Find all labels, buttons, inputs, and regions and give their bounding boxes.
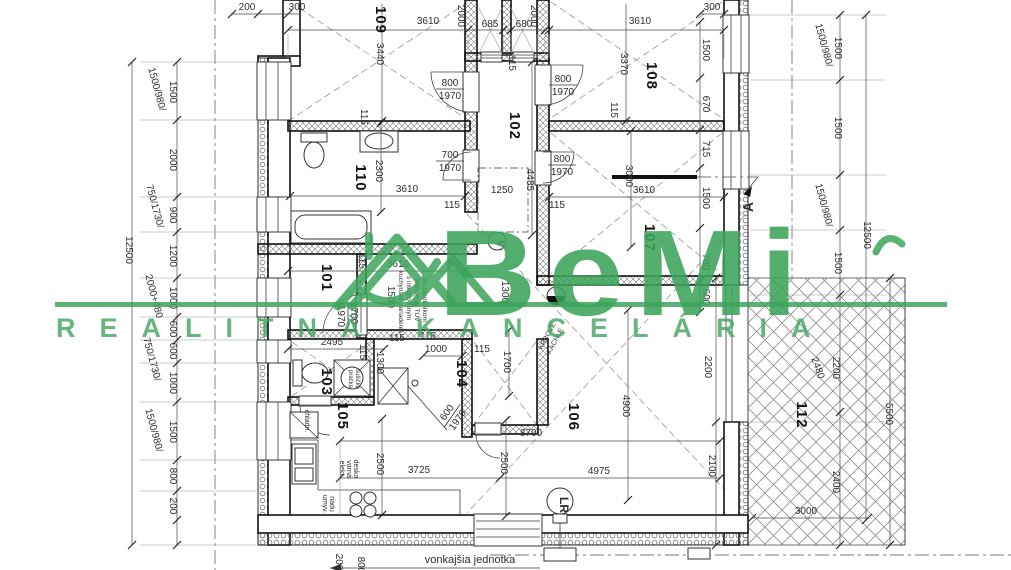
- door-width: 700: [442, 150, 459, 161]
- window-right-1: [723, 15, 749, 73]
- annotation: elekt.: [338, 461, 345, 478]
- window-left-1: [257, 62, 291, 120]
- watermark-subtitle: REALITNÁ KANCELÁRIA: [56, 313, 834, 344]
- dimension-label: 115: [506, 55, 517, 71]
- dimension-label: 200: [333, 554, 344, 570]
- annotation: riadu: [328, 496, 335, 512]
- door-104: [475, 423, 501, 458]
- dimension-label: 3370: [618, 53, 629, 76]
- door-height: 1970: [439, 91, 462, 102]
- annotation: pračka: [347, 370, 353, 389]
- dimension-label: 1500/980/: [145, 66, 167, 112]
- door-height: 1970: [552, 87, 575, 98]
- door-size-label: 8001970: [548, 154, 576, 178]
- dimension-label: 800: [167, 468, 178, 485]
- dimension-label: 200: [167, 498, 178, 515]
- dimension-label: 3440: [374, 43, 385, 66]
- door-height: 1970: [551, 167, 574, 178]
- dimension-label: 1500: [700, 39, 711, 62]
- dimension-label: 115: [474, 344, 490, 355]
- dimension-label: 2200: [830, 357, 841, 380]
- annotation: umyv.: [321, 495, 328, 513]
- dimension-label: 1250: [491, 185, 514, 196]
- room-number: 103: [318, 368, 335, 396]
- dimension-label: 300: [289, 2, 306, 13]
- dimension-label: 900: [167, 207, 178, 224]
- dimension-label: 1500: [167, 81, 178, 104]
- dimension-label: 2300: [373, 160, 384, 183]
- room-number: 106: [565, 403, 582, 431]
- dimension-label: 12500: [861, 221, 872, 249]
- dimension-label: 800: [355, 557, 366, 570]
- dimension-label: 2000: [528, 5, 539, 28]
- window-left-5: [257, 402, 291, 460]
- dimension-label: 5500: [883, 403, 894, 426]
- door-size-label: 8001970: [549, 74, 577, 98]
- dimension-label: 1000: [167, 372, 178, 395]
- annotation: varná: [345, 460, 352, 478]
- dimension-label: 1500: [167, 421, 178, 444]
- dimension-label: 300: [704, 2, 721, 13]
- dimension-label: 2500: [374, 453, 385, 476]
- dimension-label: 2000: [455, 5, 466, 28]
- room-number: 108: [643, 62, 660, 90]
- annotation: vonkajšia jednotka: [425, 554, 516, 566]
- annotation: deska: [352, 460, 359, 479]
- room-number: 112: [793, 401, 810, 428]
- dimension-label: 3610: [417, 16, 440, 27]
- dimension-label: 2200: [702, 356, 713, 379]
- dimension-label: 3000: [623, 165, 634, 188]
- dimension-label: 3610: [396, 184, 419, 195]
- room-number: 101: [318, 264, 335, 292]
- dimension-label: 8700: [520, 428, 543, 439]
- washbasin-110: [360, 131, 398, 152]
- room-number: 102: [506, 112, 523, 140]
- window-left-3: [257, 278, 291, 317]
- door-size-label: 8001970: [436, 78, 464, 102]
- dimension-label: 4485: [524, 169, 535, 192]
- door-width: 800: [442, 78, 459, 89]
- dimension-label: 2000: [167, 149, 178, 172]
- dimension-label: 4900: [620, 395, 631, 418]
- dimension-label: 1500: [832, 37, 843, 60]
- dimension-label: 2100: [706, 455, 717, 478]
- dimension-label: 600: [167, 343, 178, 360]
- dimension-label: 115: [357, 344, 368, 360]
- dimension-label: 3610: [633, 185, 656, 196]
- dimension-label: 12500: [123, 236, 134, 264]
- dimension-label: 715: [700, 141, 711, 158]
- dimension-label: 3725: [408, 465, 431, 476]
- outdoor-unit: [544, 548, 710, 561]
- dimension-label: 200: [239, 2, 256, 13]
- dimension-label: 1500/980/: [142, 407, 164, 453]
- window-right-2: [723, 131, 749, 189]
- dimension-label: 4975: [588, 466, 611, 477]
- dimension-label: 3610: [629, 16, 652, 27]
- dimension-label: 670: [700, 96, 711, 113]
- dimension-label: 1000: [425, 344, 448, 355]
- annotation: LR: [557, 497, 571, 513]
- dimension-label: 1500/980/: [812, 22, 834, 68]
- dimension-label: 2400: [830, 471, 841, 494]
- dimension-label: 115: [608, 102, 619, 118]
- door-width: 800: [554, 154, 571, 165]
- dimension-label: 115: [358, 109, 369, 125]
- door-height: 1970: [439, 163, 462, 174]
- floor-plan-page: 2003003610200068568020003610300125001500…: [0, 0, 1011, 570]
- dimension-label: 1500/980/: [812, 182, 834, 228]
- bathtub: [291, 211, 371, 243]
- dimension-label: 1700: [501, 351, 512, 374]
- dimension-label: 685: [482, 19, 499, 30]
- dimension-label: 1500: [832, 252, 843, 275]
- dimension-label: 750/1730/: [143, 183, 165, 229]
- window-left-2: [257, 197, 291, 232]
- room-number: 109: [372, 6, 389, 34]
- dimension-label: 1500: [832, 117, 843, 140]
- room-number: 105: [334, 402, 351, 430]
- room-number: 104: [453, 360, 470, 388]
- shower-tray: [378, 368, 447, 430]
- dimension-label: 1300: [374, 352, 385, 375]
- dimension-label: 3000: [795, 506, 818, 517]
- annotation: chladn.: [303, 410, 310, 433]
- room-number: 110: [352, 164, 369, 191]
- window-bottom: [474, 514, 542, 546]
- dimension-label: 2500: [498, 452, 509, 475]
- door-width: 800: [555, 74, 572, 85]
- annotation: sušička: [354, 369, 360, 390]
- toilet-110: [301, 133, 327, 168]
- dimension-label: 1200: [167, 245, 178, 268]
